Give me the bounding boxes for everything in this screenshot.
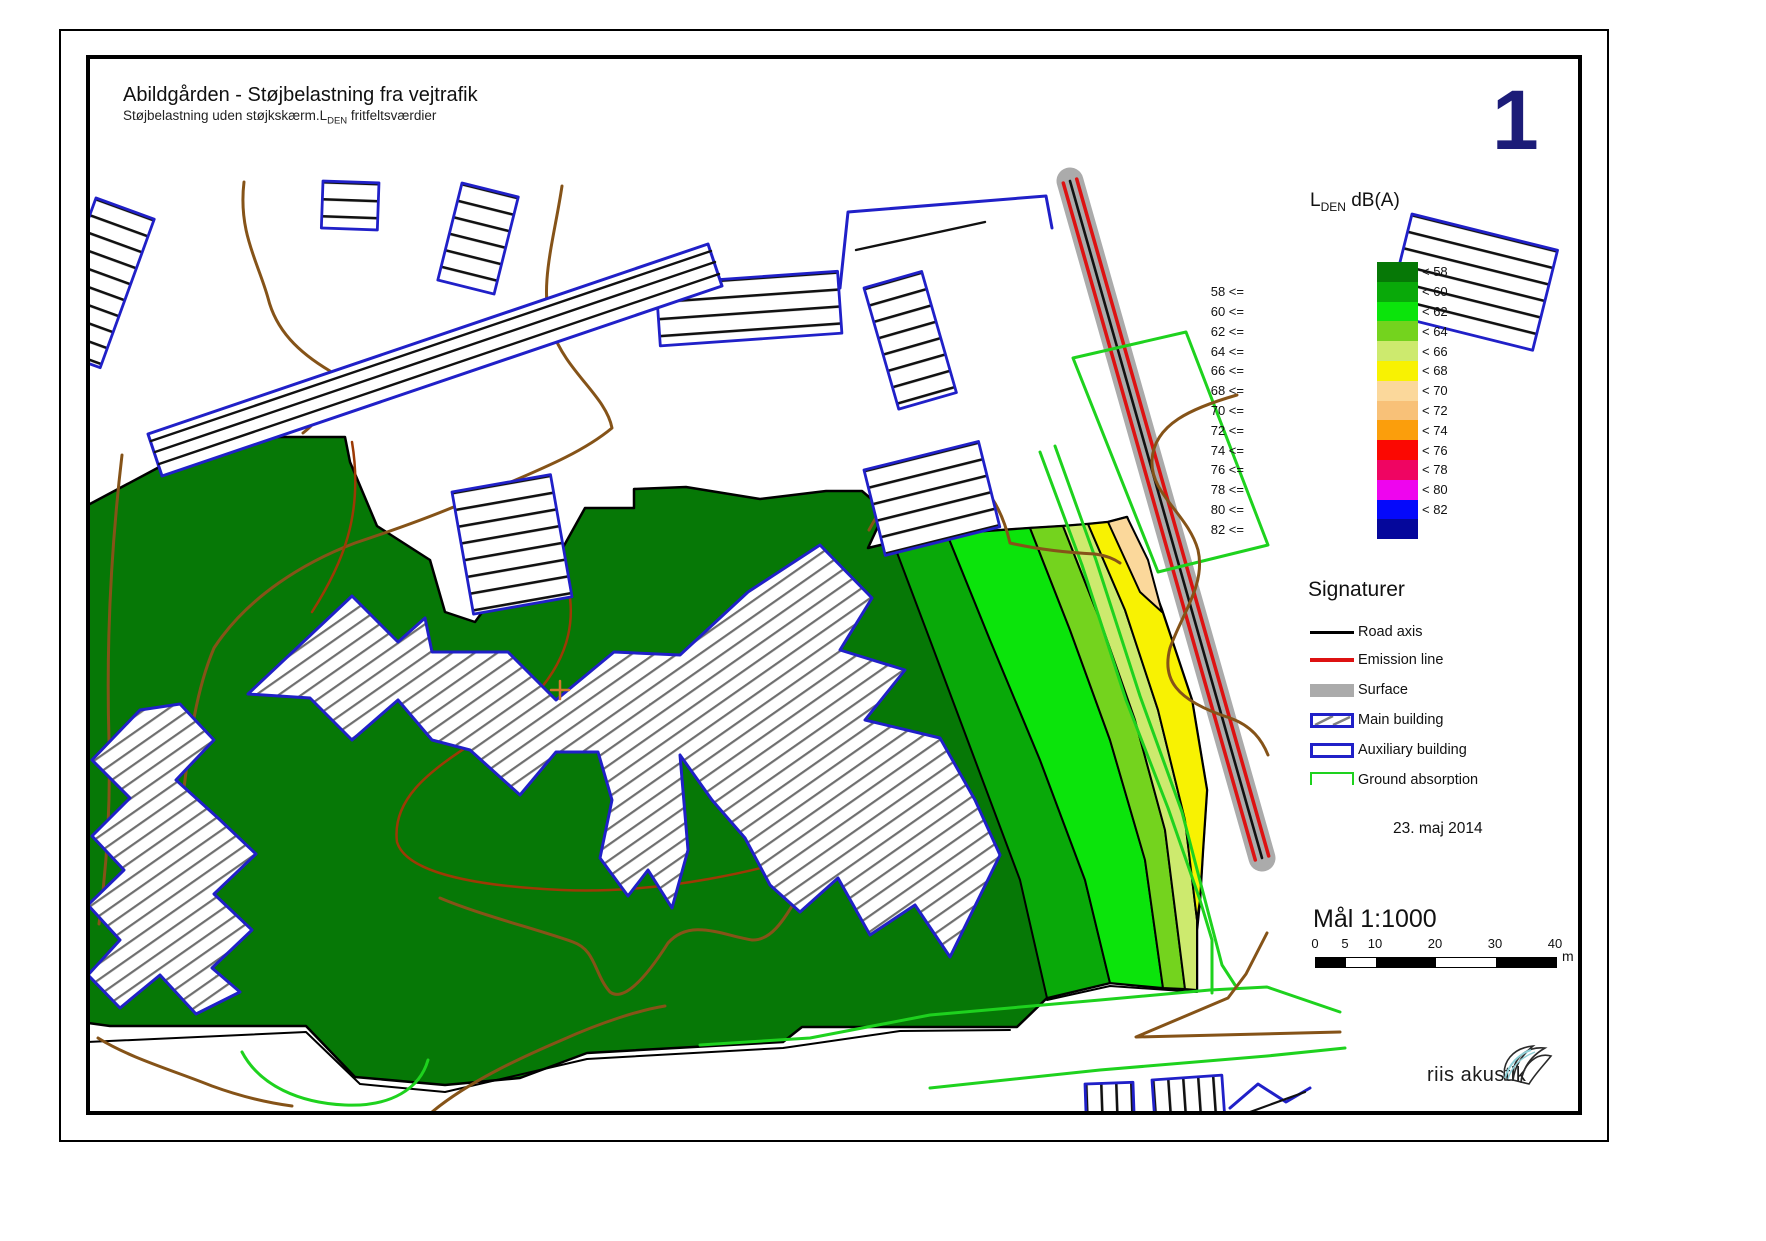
legend-left-label: 72 <= (1174, 423, 1244, 438)
main-building-symbol (1310, 713, 1354, 728)
map-date: 23. maj 2014 (1393, 820, 1483, 838)
sheet-number: 1 (1492, 78, 1539, 162)
legend-swatch (1377, 282, 1418, 302)
legend-right-label: < 70 (1422, 383, 1492, 398)
signature-label: Main building (1358, 712, 1443, 728)
signature-label: Surface (1358, 682, 1408, 698)
scale-tick: 40 (1548, 936, 1562, 951)
legend-left-label: 68 <= (1174, 383, 1244, 398)
legend-right-label: < 68 (1422, 363, 1492, 378)
legend-right-label: < 82 (1422, 502, 1492, 517)
legend-right-label: < 60 (1422, 284, 1492, 299)
scale-bar (1315, 957, 1557, 968)
signature-label: Emission line (1358, 652, 1443, 668)
scale-tick: 0 (1311, 936, 1318, 951)
legend-swatch (1377, 262, 1418, 282)
legend-left-label: 80 <= (1174, 502, 1244, 517)
legend-right-label: < 80 (1422, 482, 1492, 497)
legend-right-label: < 62 (1422, 304, 1492, 319)
legend-left-label: 62 <= (1174, 324, 1244, 339)
legend-swatch (1377, 381, 1418, 401)
legend-swatch (1377, 361, 1418, 381)
noise-map-sheet: { "page": { "number": "1", "title": "Abi… (0, 0, 1766, 1241)
legend-right-label: < 66 (1422, 344, 1492, 359)
legend-left-label: 60 <= (1174, 304, 1244, 319)
legend-swatch (1377, 440, 1418, 460)
signature-label: Ground absorption (1358, 772, 1478, 785)
legend-right-label: < 58 (1422, 264, 1492, 279)
legend-right-label: < 74 (1422, 423, 1492, 438)
scale-tick: 30 (1488, 936, 1502, 951)
legend-left-label: 82 <= (1174, 522, 1244, 537)
scale-label: Mål 1:1000 (1313, 905, 1437, 934)
scale-unit: m (1562, 948, 1574, 964)
legend-left-label: 76 <= (1174, 462, 1244, 477)
signatures-heading: Signaturer (1308, 578, 1405, 602)
legend-swatch (1377, 500, 1418, 520)
legend-swatch (1377, 460, 1418, 480)
legend-title: LDEN dB(A) (1310, 190, 1400, 214)
legend-left-label: 66 <= (1174, 363, 1244, 378)
map-subtitle: Støjbelastning uden støjkskærm.LDEN frit… (123, 108, 436, 127)
surface-symbol (1310, 684, 1354, 697)
legend-left-label: 64 <= (1174, 344, 1244, 359)
scale-tick: 20 (1428, 936, 1442, 951)
legend-right-label: < 72 (1422, 403, 1492, 418)
legend-right-label: < 76 (1422, 443, 1492, 458)
legend-swatch (1377, 302, 1418, 322)
legend-swatch (1377, 401, 1418, 421)
road-axis-symbol (1310, 631, 1354, 634)
clipped-legend-row: Ground absorption (1310, 770, 1580, 785)
legend-swatch (1377, 341, 1418, 361)
scale-tick: 5 (1341, 936, 1348, 951)
legend-swatch (1377, 519, 1418, 539)
legend-swatch (1377, 480, 1418, 500)
leaf-logo-icon (1497, 1040, 1555, 1086)
legend-left-label: 74 <= (1174, 443, 1244, 458)
legend-left-label: 78 <= (1174, 482, 1244, 497)
auxiliary-building-symbol (1310, 743, 1354, 758)
legend-left-label: 70 <= (1174, 403, 1244, 418)
legend-right-label: < 78 (1422, 462, 1492, 477)
scale-tick: 10 (1368, 936, 1382, 951)
legend-left-label: 58 <= (1174, 284, 1244, 299)
legend-right-label: < 64 (1422, 324, 1492, 339)
signature-label: Auxiliary building (1358, 742, 1467, 758)
signature-label: Road axis (1358, 624, 1422, 640)
emission-line-symbol (1310, 658, 1354, 662)
legend-swatch (1377, 321, 1418, 341)
legend-swatch (1377, 420, 1418, 440)
map-title: Abildgården - Støjbelastning fra vejtraf… (123, 84, 478, 107)
ground-absorption-symbol (1310, 772, 1354, 786)
